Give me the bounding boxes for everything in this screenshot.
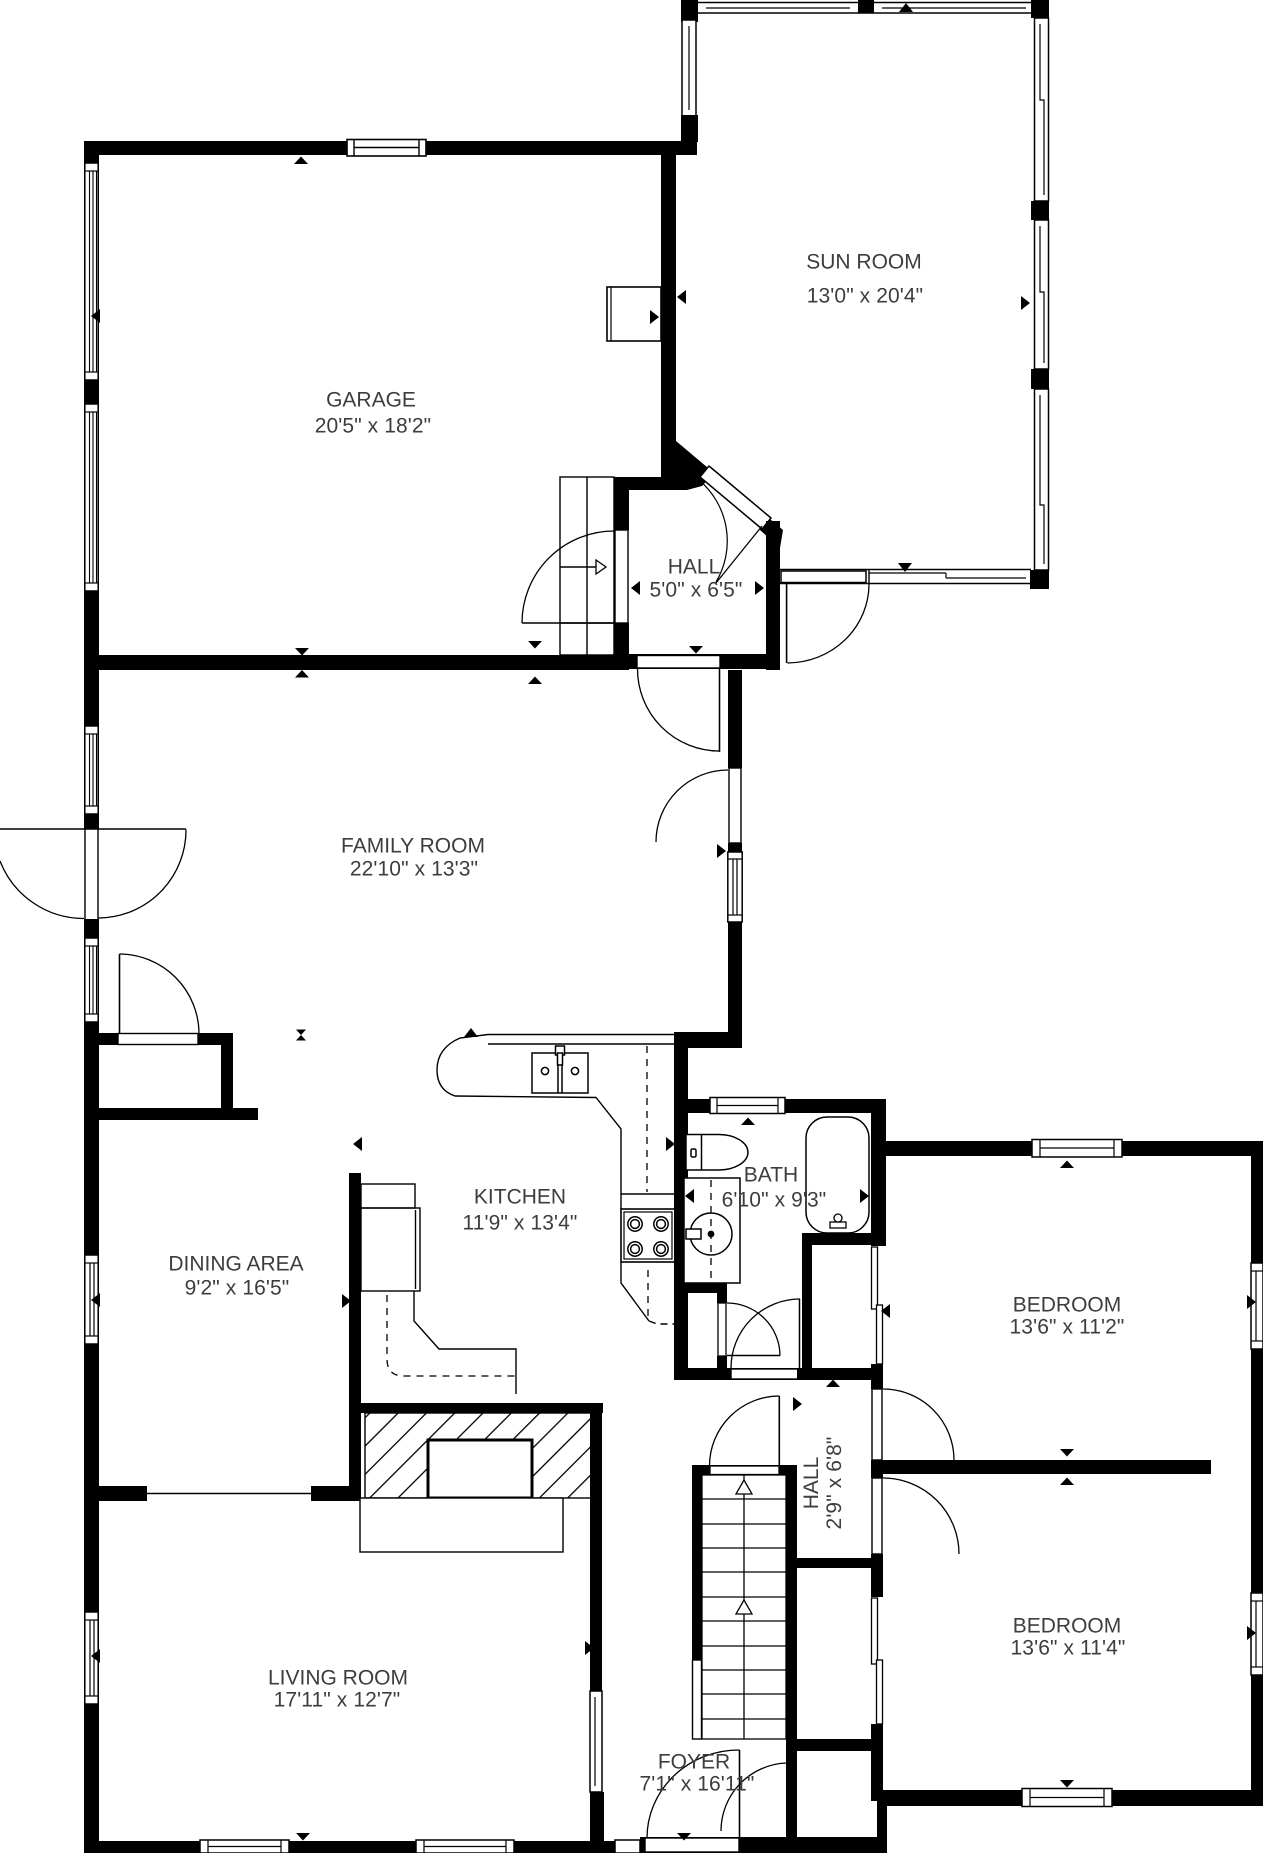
svg-text:13'0" x 20'4": 13'0" x 20'4" [807,285,923,308]
svg-text:FOYER: FOYER [658,1751,730,1774]
svg-text:20'5" x 18'2": 20'5" x 18'2" [315,415,431,438]
svg-text:HALL: HALL [800,1457,823,1510]
svg-text:LIVING ROOM: LIVING ROOM [268,1667,408,1690]
svg-text:2'9" x 6'8": 2'9" x 6'8" [823,1437,846,1530]
svg-text:9'2" x 16'5": 9'2" x 16'5" [185,1277,290,1300]
svg-text:22'10" x 13'3": 22'10" x 13'3" [350,858,478,881]
svg-text:BATH: BATH [744,1164,798,1187]
svg-text:13'6" x 11'2": 13'6" x 11'2" [1010,1316,1125,1339]
svg-text:11'9" x 13'4": 11'9" x 13'4" [463,1212,578,1235]
svg-text:KITCHEN: KITCHEN [474,1186,566,1209]
svg-text:HALL: HALL [668,556,721,579]
svg-text:17'11" x 12'7": 17'11" x 12'7" [274,1689,401,1712]
svg-text:7'1" x 16'11": 7'1" x 16'11" [640,1773,755,1796]
svg-text:SUN ROOM: SUN ROOM [806,251,922,274]
svg-text:GARAGE: GARAGE [326,389,416,412]
svg-text:5'0" x 6'5": 5'0" x 6'5" [650,579,743,602]
svg-text:13'6" x 11'4": 13'6" x 11'4" [1011,1637,1126,1660]
svg-text:BEDROOM: BEDROOM [1013,1615,1122,1638]
svg-text:6'10" x 9'3": 6'10" x 9'3" [722,1189,827,1212]
svg-text:BEDROOM: BEDROOM [1013,1294,1122,1317]
svg-text:FAMILY ROOM: FAMILY ROOM [341,835,485,858]
svg-text:DINING AREA: DINING AREA [168,1253,303,1276]
